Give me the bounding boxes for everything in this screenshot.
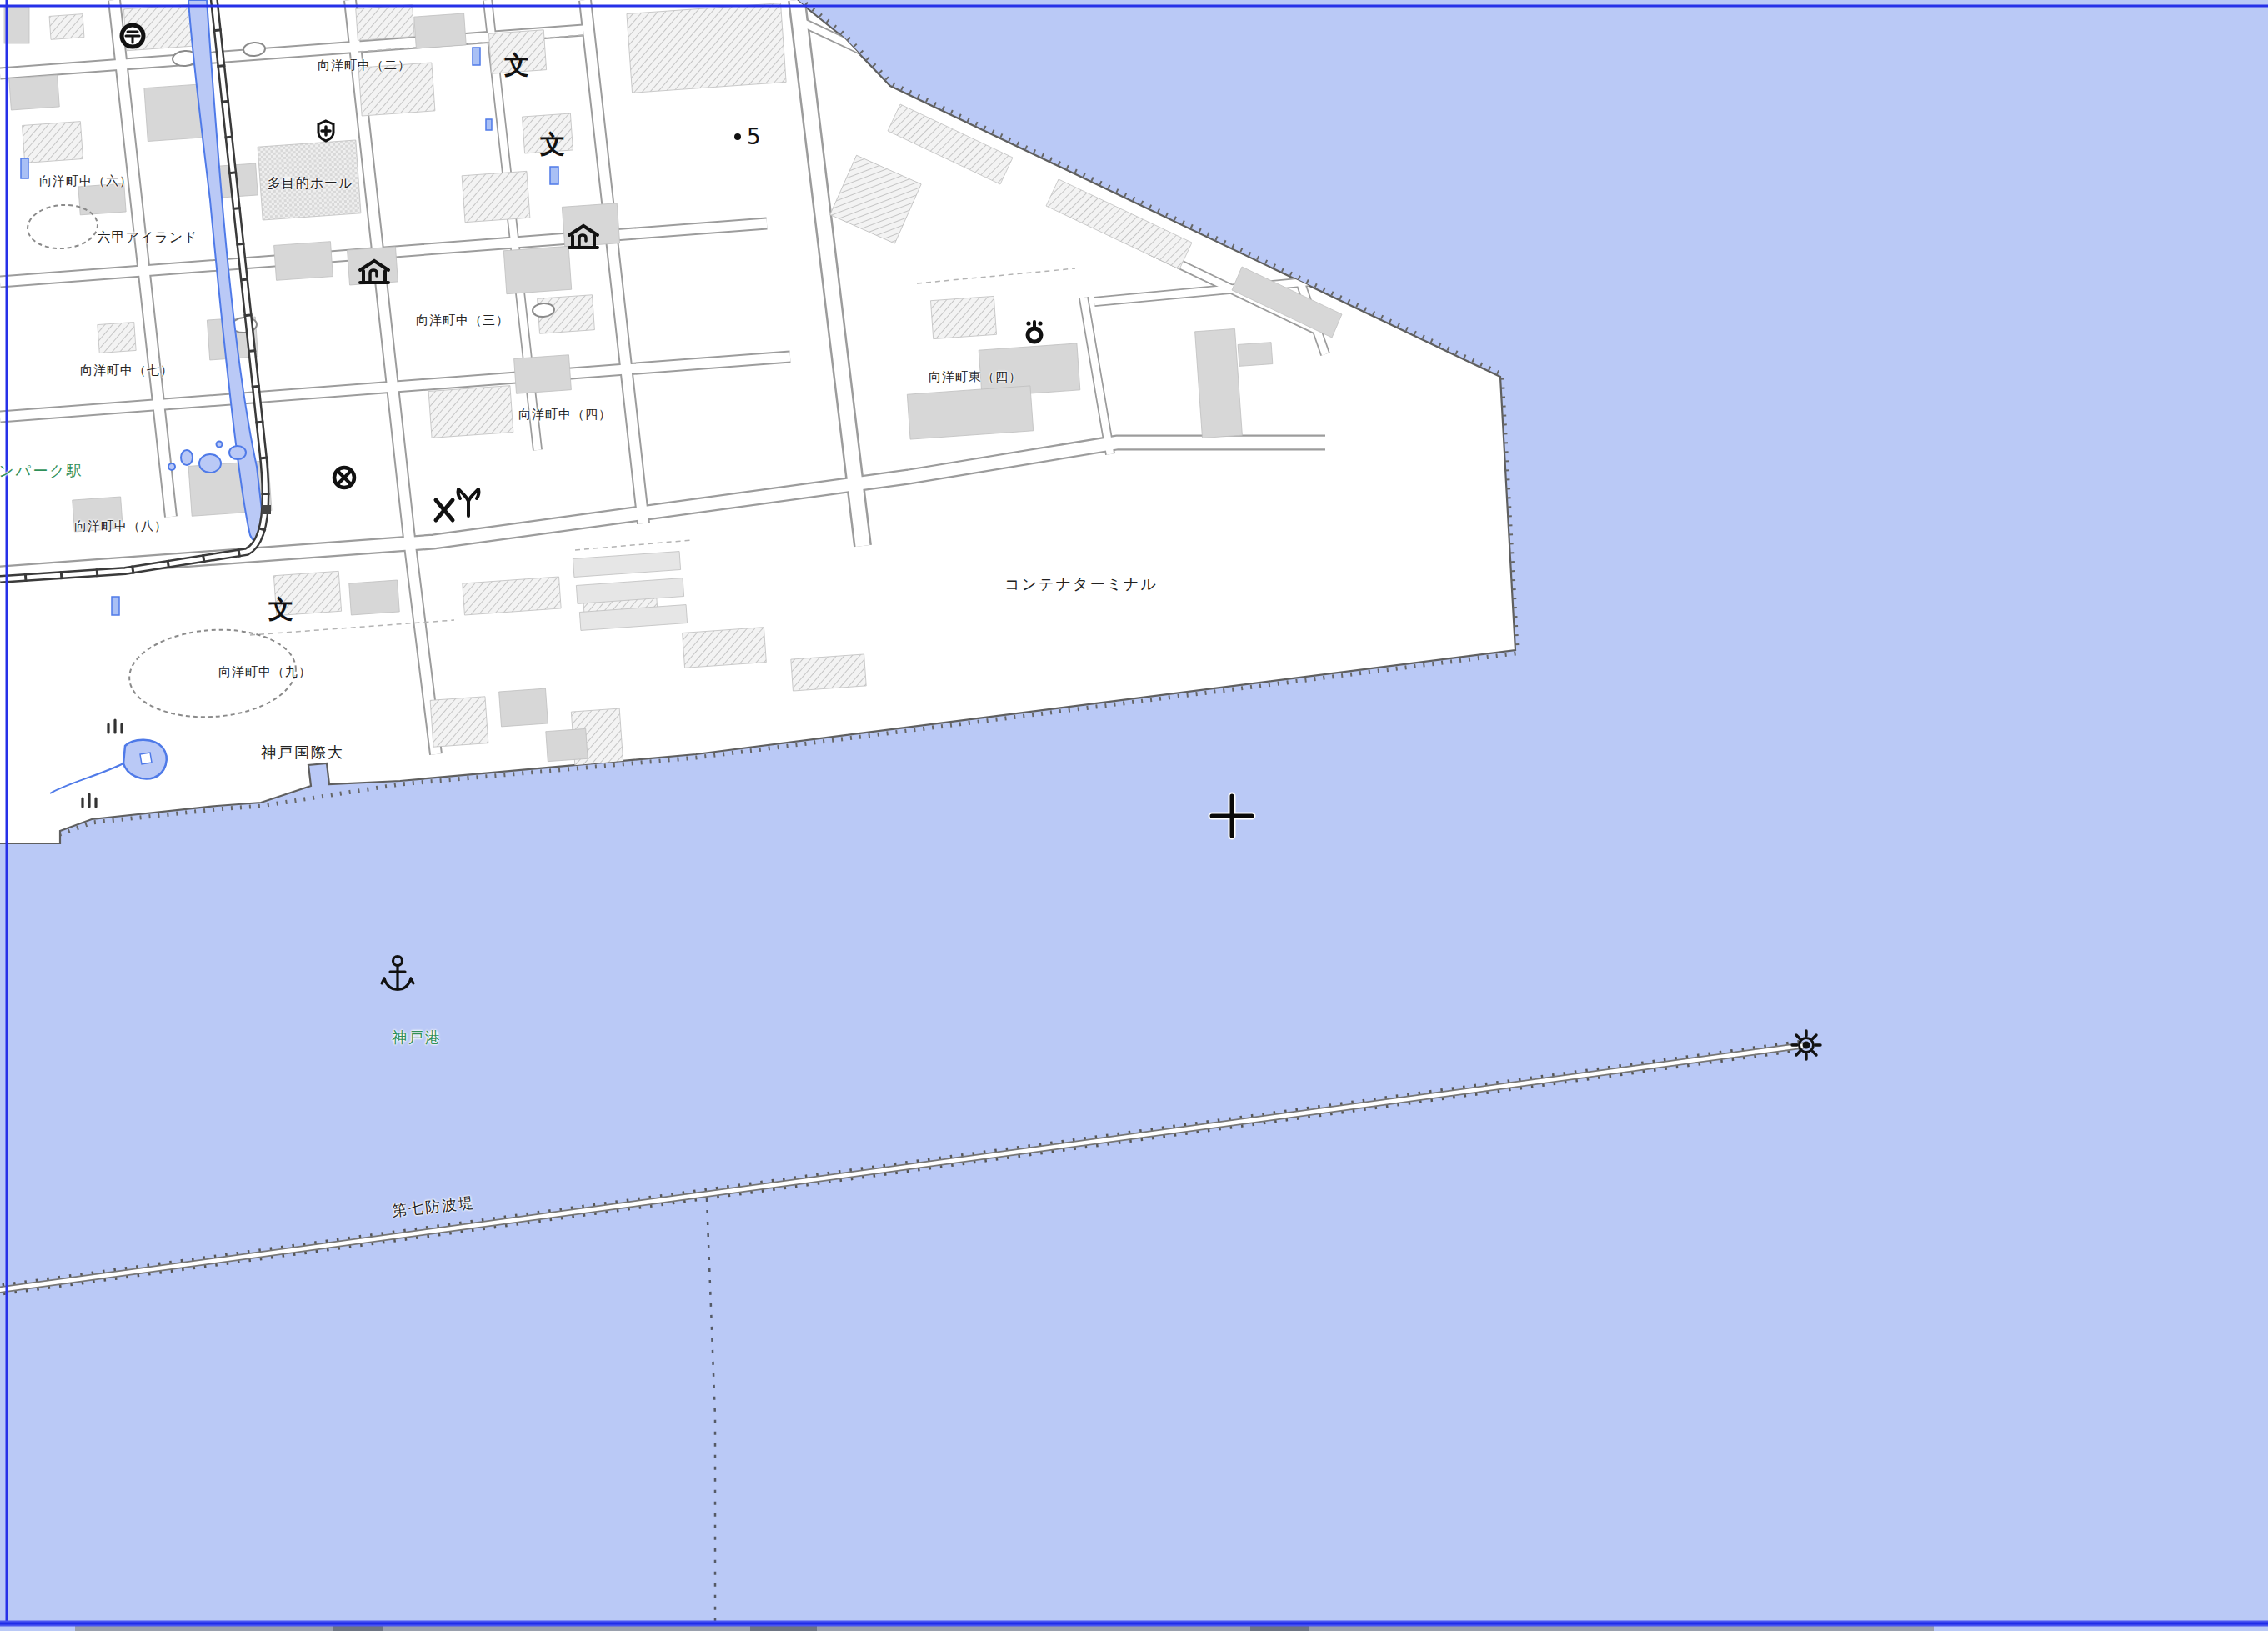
label-rokko-island: 六甲アイランド	[98, 231, 198, 244]
label-tamokuteki-hall: 多目的ホール	[268, 177, 353, 190]
post-office-icon	[122, 25, 143, 47]
label-koyocho-naka-3: 向洋町中（三）	[416, 314, 509, 327]
school-icon: 文	[268, 594, 293, 623]
spot-elevation-dot	[734, 133, 741, 140]
label-koyocho-higashi-4: 向洋町東（四）	[929, 371, 1022, 383]
label-koyocho-naka-8: 向洋町中（八）	[74, 520, 168, 533]
map-base-layer: 文 文 文	[0, 0, 2268, 1631]
label-kobe-international-university: 神戸国際大	[261, 745, 344, 760]
lighthouse-icon	[1792, 1031, 1820, 1059]
hospital-icon	[318, 121, 333, 141]
label-koyocho-naka-4: 向洋町中（四）	[518, 408, 612, 421]
police-station-icon	[334, 468, 354, 488]
school-icon: 文	[540, 129, 565, 158]
label-koyocho-naka-7: 向洋町中（七）	[80, 364, 173, 377]
spot-elevation-value: 5	[747, 126, 761, 148]
label-koyocho-naka-6: 向洋町中（六）	[39, 175, 133, 188]
school-icon: 文	[504, 50, 529, 79]
label-container-terminal: コンテナターミナル	[1004, 577, 1157, 592]
label-koyocho-naka-9: 向洋町中（九）	[218, 666, 312, 678]
label-kobe-port: 神戸港	[392, 1030, 442, 1045]
label-marine-park-station: ンパーク駅	[0, 463, 83, 478]
label-koyocho-naka-2: 向洋町中（二）	[318, 59, 411, 72]
power-substation-icon	[1026, 321, 1042, 342]
station-marker	[262, 505, 271, 514]
map-canvas[interactable]: 文 文 文	[0, 0, 2268, 1631]
